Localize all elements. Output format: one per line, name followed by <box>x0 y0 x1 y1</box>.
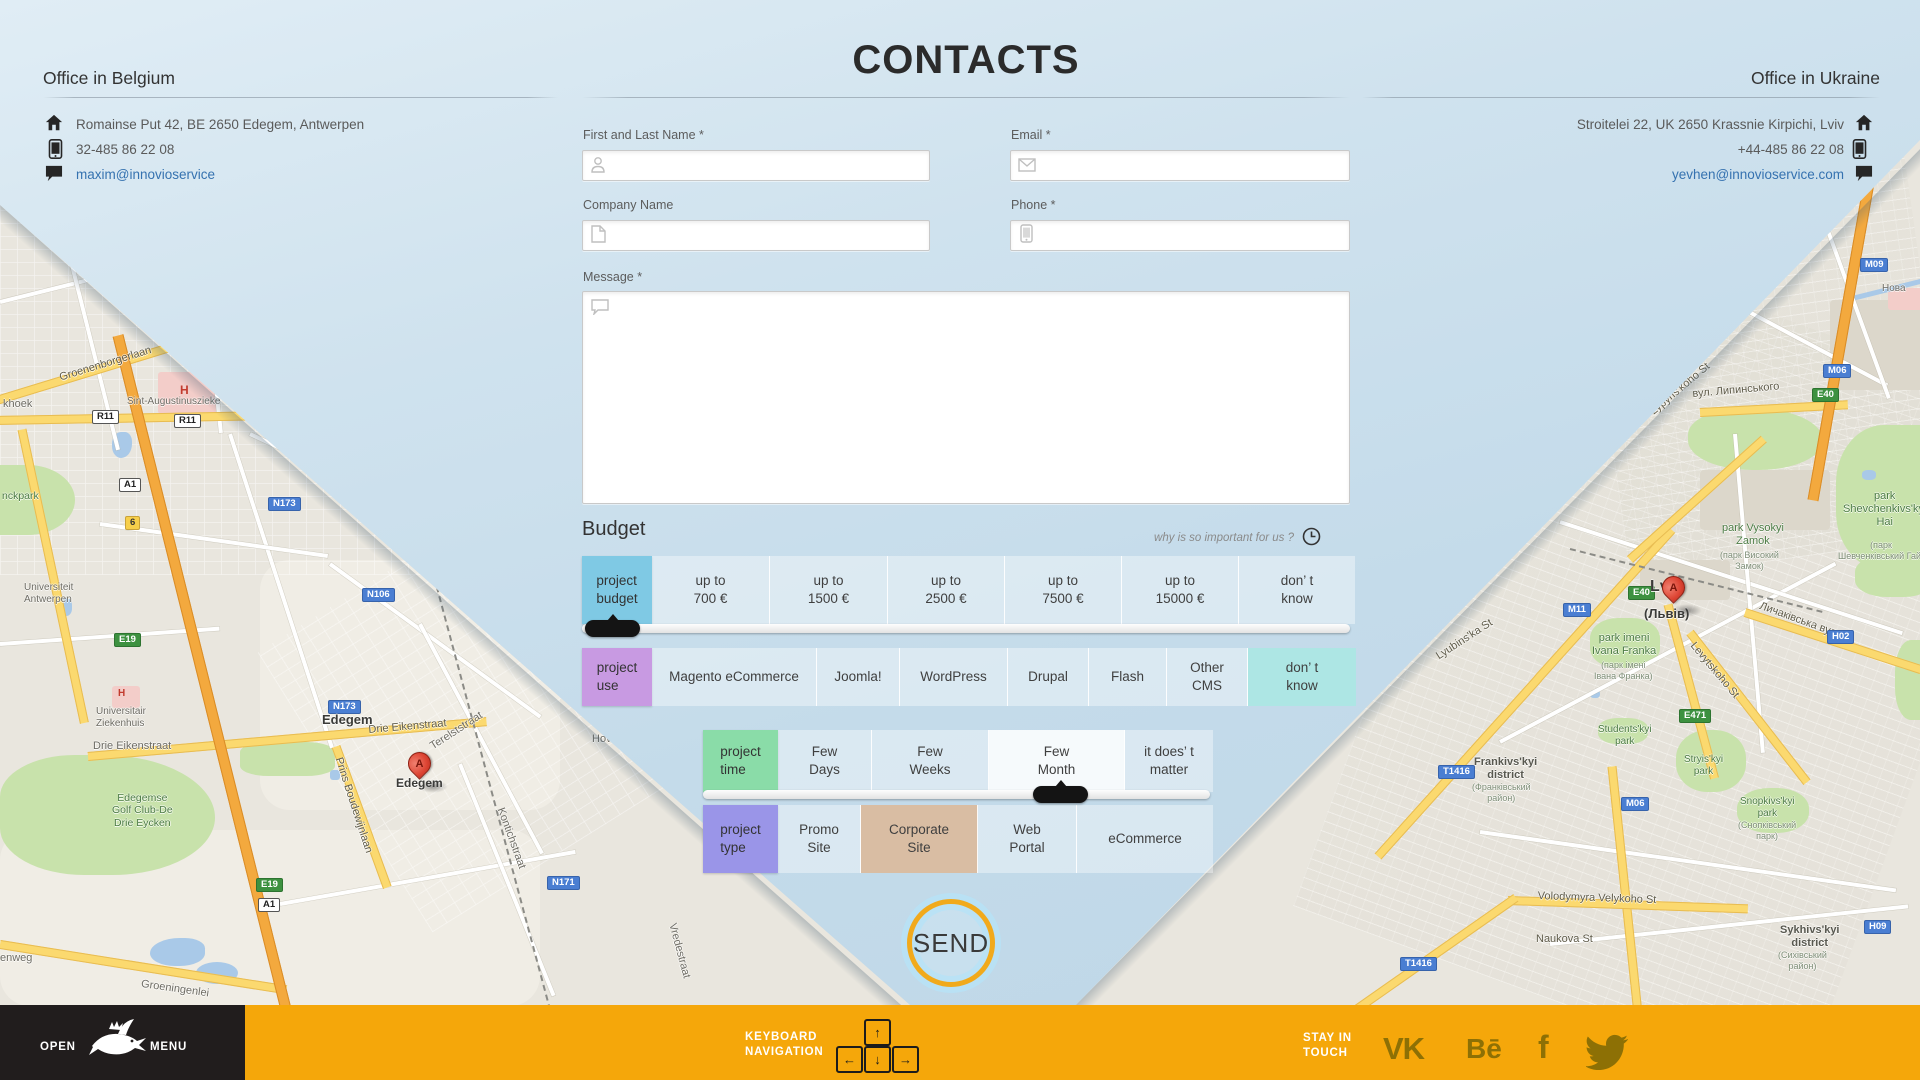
map-label: Hove <box>592 733 618 746</box>
map-label: Нова <box>1882 283 1906 295</box>
budget-why-link[interactable]: why is so important for us ? <box>582 532 1294 544</box>
map-label: H <box>118 688 125 700</box>
map-label: (парк імені Івана Франка) <box>1594 660 1653 681</box>
map-label: enweg <box>0 952 32 965</box>
map-marker-shadow <box>418 780 448 793</box>
map-label: N173 <box>268 497 301 511</box>
arrow-right-key-icon: → <box>892 1046 919 1073</box>
map-label: Frankivs'kyi district <box>1474 756 1537 782</box>
divider <box>582 97 1350 98</box>
map-label: Sint-Augustinuszieke <box>127 396 220 408</box>
map-label: (Сихівський район) <box>1778 950 1827 971</box>
map-label: Stryis'kyi park <box>1684 754 1723 778</box>
option-drupal[interactable]: Drupal <box>1008 648 1089 706</box>
page-title: CONTACTS <box>582 38 1350 83</box>
option-few-days[interactable]: Few Days <box>778 730 872 792</box>
map-label: A1 <box>119 478 141 492</box>
home-icon <box>1855 114 1875 134</box>
map-label: N171 <box>547 876 580 890</box>
office-ukraine: Office in Ukraine <box>1751 68 1880 89</box>
option-joomla-[interactable]: Joomla! <box>817 648 900 706</box>
map-area <box>0 755 215 875</box>
option-up-to-7500-[interactable]: up to 7500 € <box>1005 556 1122 624</box>
map-label: Universitair Ziekenhuis <box>96 706 146 730</box>
option-up-to-2500-[interactable]: up to 2500 € <box>888 556 1005 624</box>
budget-row-project-use: project useMagento eCommerceJoomla!WordP… <box>582 648 1356 706</box>
project-time-label: project time <box>703 730 778 792</box>
map-label: (Франківський район) <box>1472 782 1531 803</box>
project-time-slider-handle[interactable] <box>1033 786 1088 803</box>
map-label: E471 <box>1679 709 1711 723</box>
arrow-down-key-icon: ↓ <box>864 1046 891 1073</box>
map-label: khoek <box>3 398 32 411</box>
office-ukraine-address: Stroitelei 22, UK 2650 Krassnie Kirpichi… <box>1577 117 1844 132</box>
divider <box>43 97 558 98</box>
send-button[interactable]: SEND <box>907 899 995 987</box>
map-area <box>150 938 205 966</box>
phone-input[interactable] <box>1010 220 1350 251</box>
divider <box>1362 97 1880 98</box>
name-label: First and Last Name * <box>583 128 704 142</box>
option-don-t-know[interactable]: don’ t know <box>1239 556 1355 624</box>
option-up-to-700-[interactable]: up to 700 € <box>652 556 770 624</box>
map-label: E19 <box>256 878 283 892</box>
option-magento-ecommerce[interactable]: Magento eCommerce <box>652 648 817 706</box>
office-belgium-title: Office in Belgium <box>43 68 175 89</box>
option-promo-site[interactable]: Promo Site <box>778 805 861 873</box>
option-it-does-t-matter[interactable]: it does’ t matter <box>1125 730 1213 792</box>
map-label: A1 <box>258 898 280 912</box>
option-corporate-site[interactable]: Corporate Site <box>861 805 978 873</box>
map-label: M06 <box>1621 797 1649 811</box>
footer-bar <box>245 1005 1920 1080</box>
option-other-cms[interactable]: Other CMS <box>1167 648 1248 706</box>
map-label: Edegem <box>322 712 373 727</box>
map-label: Sykhivs'kyi district <box>1780 924 1840 950</box>
office-belgium-address: Romainse Put 42, BE 2650 Edegem, Antwerp… <box>76 117 364 132</box>
project-budget-slider-track[interactable] <box>582 624 1350 633</box>
option-web-portal[interactable]: Web Portal <box>978 805 1077 873</box>
phone-icon <box>1852 139 1872 159</box>
office-ukraine-title: Office in Ukraine <box>1751 68 1880 89</box>
flying-fish-logo[interactable] <box>80 1016 152 1073</box>
map-label: T1416 <box>1400 957 1437 971</box>
chat-bubble-icon <box>1855 165 1875 185</box>
map-label: Snopkivs'kyi park <box>1740 796 1795 820</box>
option-up-to-1500-[interactable]: up to 1500 € <box>770 556 888 624</box>
map-label: Naukova St <box>1536 933 1593 946</box>
name-input[interactable] <box>582 150 930 181</box>
option-few-weeks[interactable]: Few Weeks <box>872 730 989 792</box>
open-label[interactable]: OPEN <box>40 1040 76 1055</box>
map-label: E40 <box>1812 388 1839 402</box>
project-use-label: project use <box>582 648 652 706</box>
phone-icon <box>48 139 68 159</box>
map-label: Drie Eikenstraat <box>93 740 171 753</box>
map-label: park Shevchenkivs'kyi Hai <box>1843 490 1920 529</box>
map-label: park Vysokyi Zamok <box>1722 522 1784 548</box>
menu-label[interactable]: MENU <box>150 1040 187 1055</box>
map-label: Students'kyi park <box>1598 724 1652 748</box>
map-label: N106 <box>362 588 395 602</box>
office-belgium-email-link[interactable]: maxim@innovioservice <box>76 167 215 182</box>
option-ecommerce[interactable]: eCommerce <box>1077 805 1213 873</box>
office-ukraine-email-link[interactable]: yevhen@innovioservice.com <box>1672 167 1844 182</box>
email-input[interactable] <box>1010 150 1350 181</box>
map-label: (Снопківський парк) <box>1738 820 1796 841</box>
company-input[interactable] <box>582 220 930 251</box>
office-belgium-phone: 32-485 86 22 08 <box>76 142 174 157</box>
map-label: E19 <box>114 633 141 647</box>
map-label: 6 <box>125 516 140 530</box>
map-area <box>1862 470 1876 480</box>
map-label: Vredestraat <box>665 922 692 980</box>
option-flash[interactable]: Flash <box>1089 648 1167 706</box>
facebook-icon[interactable]: f <box>1538 1031 1549 1063</box>
map-label: (парк Шевченківський Гай) <box>1838 540 1920 561</box>
phone-label: Phone * <box>1011 198 1055 212</box>
behance-icon[interactable]: Bē <box>1466 1035 1502 1063</box>
arrow-up-key-icon: ↑ <box>864 1019 891 1046</box>
map-label: H02 <box>1827 630 1854 644</box>
office-ukraine-phone: +44-485 86 22 08 <box>1738 142 1844 157</box>
option-up-to-15000-[interactable]: up to 15000 € <box>1122 556 1239 624</box>
stay-in-touch-label: STAY INTOUCH <box>1303 1031 1352 1061</box>
map-label: H <box>180 383 189 397</box>
map-label: H09 <box>1864 920 1891 934</box>
map-label: park imeni Ivana Franka <box>1592 632 1656 658</box>
map-label: T1416 <box>1438 765 1475 779</box>
vk-icon[interactable]: VK <box>1383 1033 1424 1064</box>
project-type-label: project type <box>703 805 778 873</box>
map-area <box>1855 555 1920 597</box>
email-label: Email * <box>1011 128 1051 142</box>
map-marker-shadow <box>1672 604 1702 617</box>
project-budget-slider-handle[interactable] <box>585 620 640 637</box>
contacts-page: GroenenborgerlaankhoekSint-Augustinuszie… <box>0 0 1920 1080</box>
chat-bubble-icon <box>45 165 65 185</box>
option-don-t-know[interactable]: don’ t know <box>1248 648 1356 706</box>
option-wordpress[interactable]: WordPress <box>900 648 1008 706</box>
map-label: Edegemse Golf Club-De Drie Eycken <box>112 792 173 829</box>
budget-row-project-type: project typePromo SiteCorporate SiteWeb … <box>703 805 1213 873</box>
map-area <box>0 205 560 575</box>
message-textarea[interactable] <box>582 291 1350 504</box>
clock-icon[interactable] <box>1302 527 1321 551</box>
office-belgium: Office in Belgium <box>43 68 175 89</box>
twitter-icon[interactable] <box>1586 1034 1628 1074</box>
arrow-left-key-icon: ← <box>836 1046 863 1073</box>
map-label: M06 <box>1823 364 1851 378</box>
budget-row-project-time: project timeFew DaysFew WeeksFew Monthit… <box>703 730 1213 792</box>
map-road <box>0 198 408 303</box>
map-area <box>112 686 140 708</box>
map-label: R11 <box>92 410 119 424</box>
map-label: R11 <box>174 414 201 428</box>
keyboard-nav-label: KEYBOARDNAVIGATION <box>745 1030 824 1060</box>
map-area <box>1895 640 1920 720</box>
project-time-slider-track[interactable] <box>703 790 1210 799</box>
budget-row-project-budget: project budgetup to 700 €up to 1500 €up … <box>582 556 1355 624</box>
map-label: Universiteit Antwerpen <box>24 582 73 606</box>
map-area <box>240 742 335 776</box>
map-label: (парк Високий Замок) <box>1720 550 1779 571</box>
map-label: M11 <box>1563 603 1591 617</box>
company-label: Company Name <box>583 198 673 212</box>
map-label: M09 <box>1860 258 1888 272</box>
home-icon <box>45 114 65 134</box>
message-label: Message * <box>583 270 642 284</box>
map-label: nckpark <box>2 490 39 502</box>
